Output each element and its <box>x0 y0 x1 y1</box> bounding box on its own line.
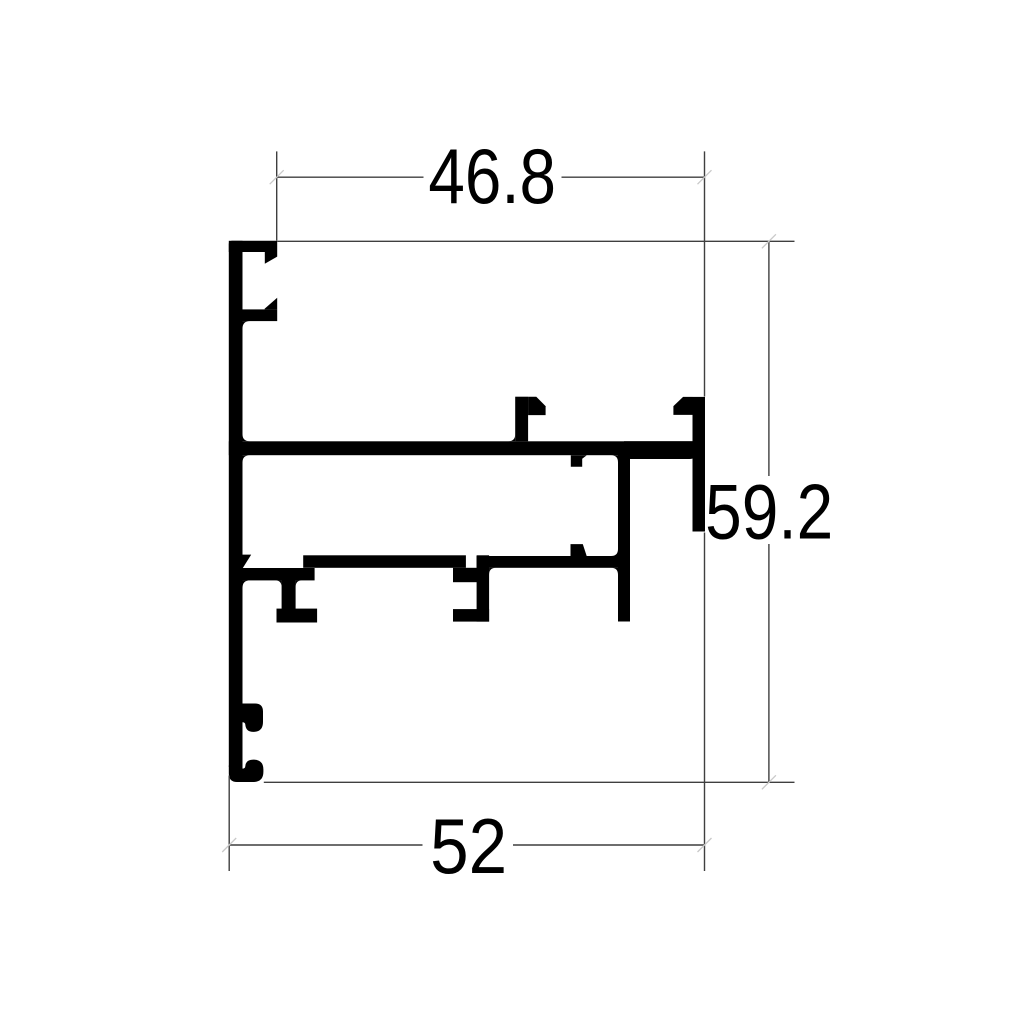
svg-text:46.8: 46.8 <box>428 134 556 220</box>
svg-text:52: 52 <box>430 802 507 890</box>
svg-text:59.2: 59.2 <box>705 470 833 556</box>
